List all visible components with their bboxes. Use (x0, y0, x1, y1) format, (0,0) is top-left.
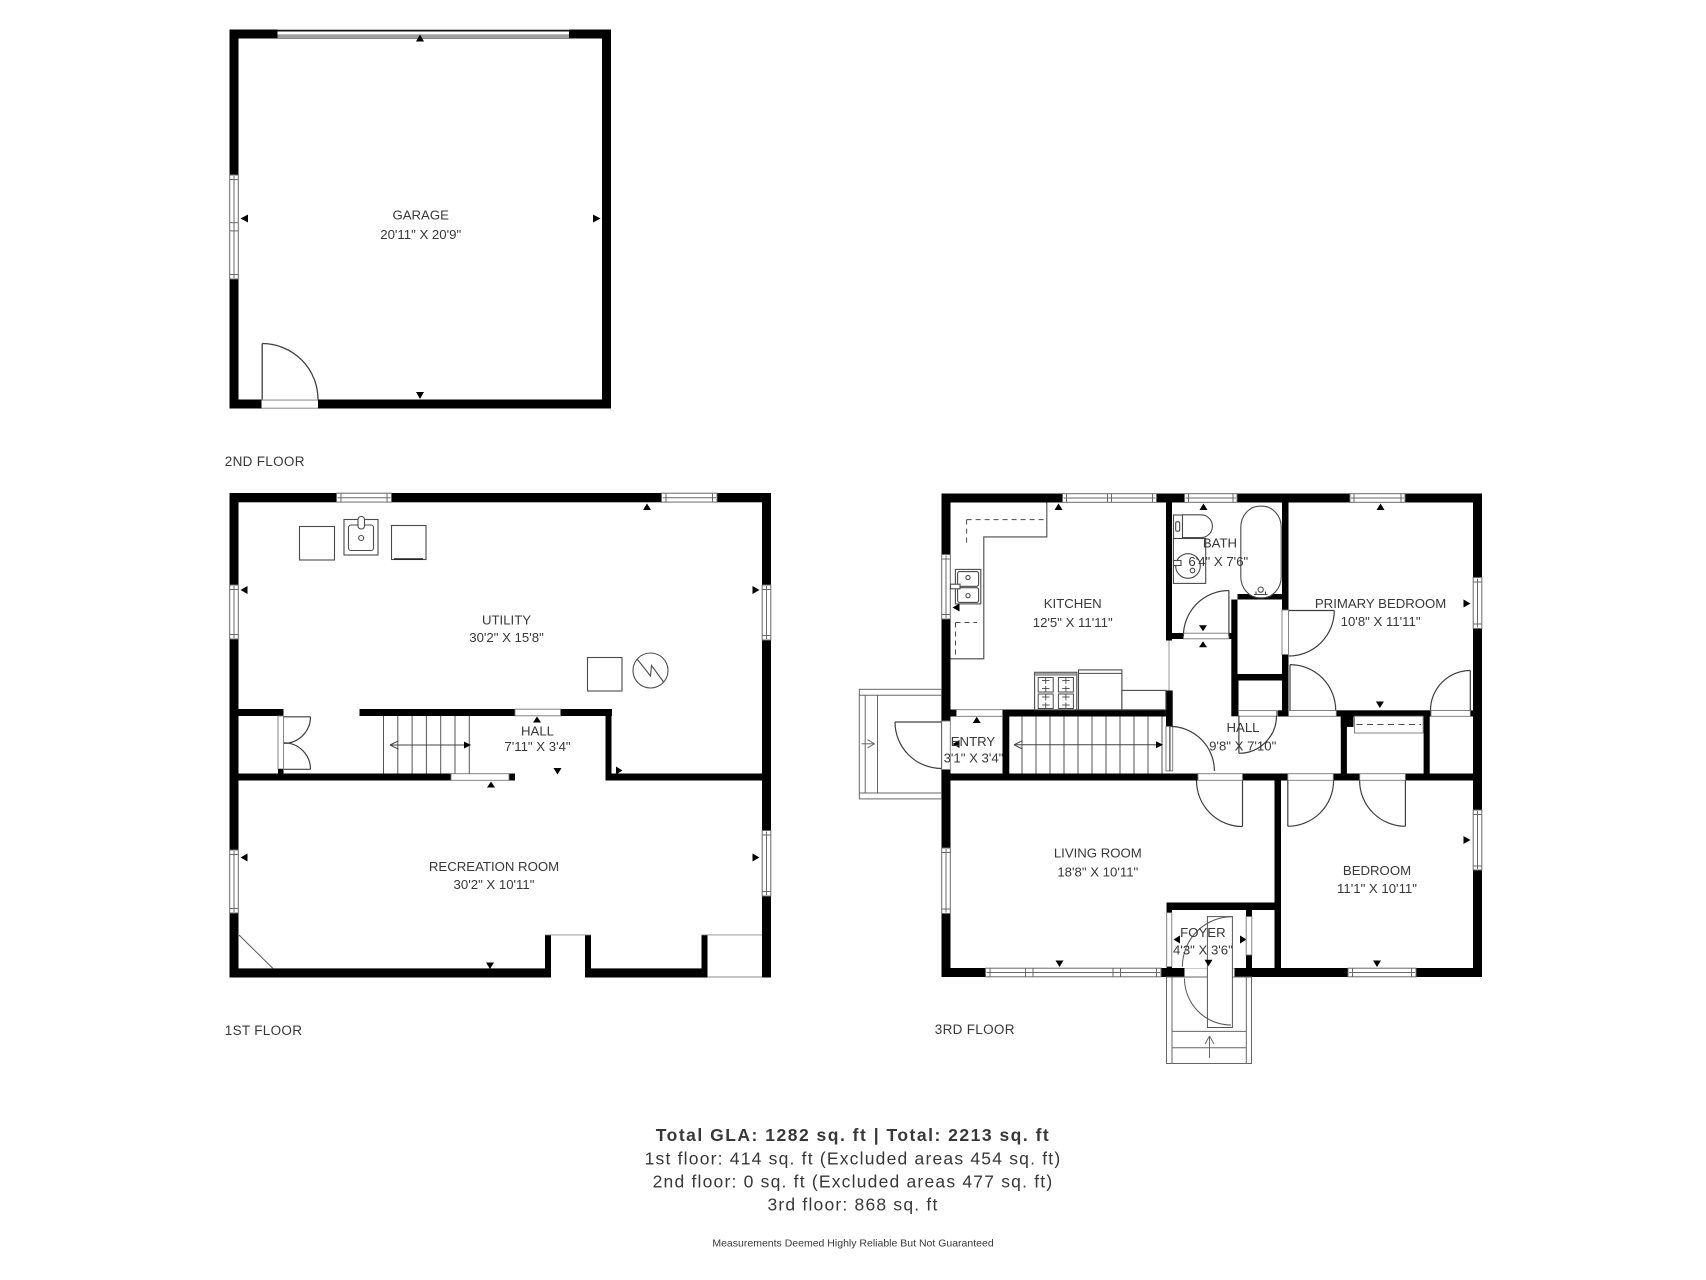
svg-text:UTILITY: UTILITY (482, 613, 531, 628)
svg-text:FOYER: FOYER (1180, 925, 1225, 940)
svg-text:7'11" X 3'4": 7'11" X 3'4" (504, 739, 571, 754)
svg-text:30'2" X 15'8": 30'2" X 15'8" (469, 630, 544, 645)
svg-text:3rd floor: 868 sq. ft: 3rd floor: 868 sq. ft (767, 1195, 938, 1215)
svg-text:RECREATION ROOM: RECREATION ROOM (429, 859, 559, 874)
svg-text:30'2" X 10'11": 30'2" X 10'11" (454, 877, 535, 892)
svg-text:18'8" X 10'11": 18'8" X 10'11" (1057, 865, 1138, 880)
svg-text:9'8" X 7'10": 9'8" X 7'10" (1209, 739, 1277, 754)
svg-text:2ND FLOOR: 2ND FLOOR (225, 454, 305, 469)
svg-text:LIVING ROOM: LIVING ROOM (1054, 846, 1142, 861)
svg-text:3'1" X 3'4": 3'1" X 3'4" (944, 751, 1004, 766)
svg-text:2nd floor: 0 sq. ft (Excluded: 2nd floor: 0 sq. ft (Excluded areas 477 … (653, 1172, 1054, 1192)
svg-text:3RD FLOOR: 3RD FLOOR (935, 1022, 1015, 1037)
svg-text:ENTRY: ENTRY (951, 734, 996, 749)
svg-text:20'11" X 20'9": 20'11" X 20'9" (380, 227, 461, 242)
svg-text:BATH: BATH (1203, 536, 1237, 551)
svg-text:6'4" X 7'6": 6'4" X 7'6" (1188, 554, 1248, 569)
svg-text:11'1" X 10'11": 11'1" X 10'11" (1337, 881, 1417, 896)
svg-text:HALL: HALL (1227, 720, 1260, 735)
svg-text:Measurements Deemed Highly Rel: Measurements Deemed Highly Reliable But … (712, 1238, 993, 1250)
svg-text:KITCHEN: KITCHEN (1044, 596, 1102, 611)
svg-text:1st floor: 414 sq. ft (Exclude: 1st floor: 414 sq. ft (Excluded areas 45… (645, 1149, 1062, 1169)
svg-text:10'8" X 11'11": 10'8" X 11'11" (1341, 614, 1421, 629)
svg-text:PRIMARY BEDROOM: PRIMARY BEDROOM (1315, 596, 1446, 611)
svg-text:1ST FLOOR: 1ST FLOOR (225, 1023, 302, 1038)
svg-text:4'3" X 3'6": 4'3" X 3'6" (1173, 943, 1233, 958)
svg-text:BEDROOM: BEDROOM (1343, 863, 1411, 878)
svg-text:HALL: HALL (521, 724, 554, 739)
svg-text:GARAGE: GARAGE (392, 208, 449, 223)
svg-text:Total GLA: 1282 sq. ft | Total: Total GLA: 1282 sq. ft | Total: 2213 sq.… (656, 1125, 1051, 1145)
svg-text:12'5" X 11'11": 12'5" X 11'11" (1033, 615, 1113, 630)
